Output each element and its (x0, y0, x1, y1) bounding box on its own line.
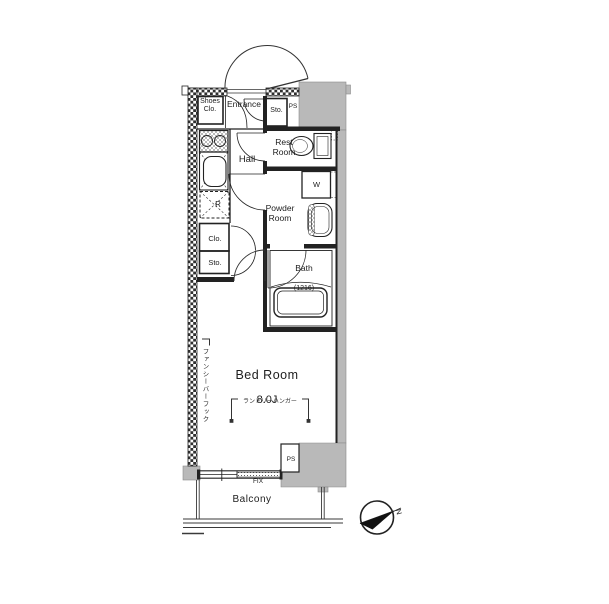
floor-plan-drawing: N (0, 0, 609, 604)
sink-icon (204, 157, 227, 187)
north-compass-icon: N (360, 501, 404, 534)
room-label-ps-top: PS (289, 103, 298, 111)
powder-room-door-arc (229, 174, 265, 210)
room-label-balcony: Balcony (232, 494, 271, 506)
bedroom-window (200, 469, 281, 482)
storage-door-arc-2 (231, 251, 256, 276)
closet-door-arc (231, 226, 256, 251)
stove-icon (200, 131, 229, 153)
fancy-bar-hook-bracket (202, 339, 210, 346)
laundry-hanger-label: ランドリーハンガー (243, 399, 297, 406)
north-label: N (394, 508, 404, 516)
fancy-bar-hook-label: ファンシーバーフック (201, 348, 208, 423)
room-label-bath: Bath(1216) (294, 258, 314, 296)
room-label-hall: Hall (239, 154, 255, 165)
entrance-door-arc (225, 45, 308, 93)
room-label-powder-room: PowderRoom (266, 203, 295, 223)
room-label-storage-top: Sto. (270, 107, 282, 115)
room-label-entrance: Entrance (227, 99, 261, 109)
room-label-closet: Clo. (208, 235, 221, 244)
toilet-tank (314, 134, 331, 159)
fix-window-strip (237, 472, 280, 477)
room-label-refrigerator: R (215, 200, 221, 209)
room-label-ps-bottom: PS (287, 456, 296, 464)
room-label-storage: Sto. (208, 259, 221, 268)
floor-plan: N ShoesClo. Entrance Sto. PS RestRoom Ha… (0, 0, 609, 604)
closet-area (200, 224, 256, 276)
room-label-washer: W (313, 181, 320, 190)
bedroom-door-arc (234, 250, 265, 281)
room-label-rest-room: RestRoom (273, 137, 296, 157)
fix-window-label: FIX (253, 478, 263, 486)
room-label-shoes-closet: ShoesClo. (200, 98, 220, 115)
